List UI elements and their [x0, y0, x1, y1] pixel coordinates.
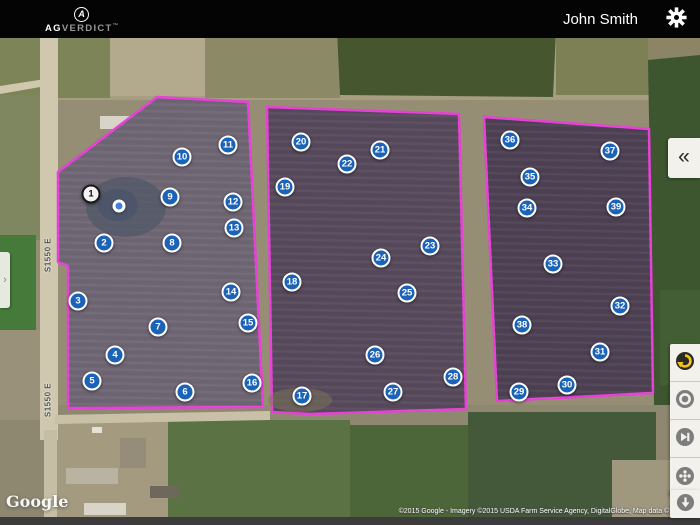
- user-name[interactable]: John Smith: [563, 11, 638, 28]
- sample-point-marker-8[interactable]: 8: [163, 234, 182, 253]
- skip-tool-button[interactable]: [670, 420, 700, 458]
- settings-button[interactable]: [665, 8, 687, 30]
- agverdict-logo[interactable]: A AGVERDICT™: [45, 7, 118, 34]
- satellite-map[interactable]: [0, 0, 700, 525]
- sample-point-marker-13[interactable]: 13: [225, 219, 244, 238]
- user-area: John Smith: [563, 8, 687, 30]
- sample-point-marker-10[interactable]: 10: [173, 148, 192, 167]
- sample-point-marker-24[interactable]: 24: [372, 249, 391, 268]
- sample-point-marker-12[interactable]: 12: [224, 193, 243, 212]
- gear-icon: [666, 7, 687, 31]
- sample-point-marker-33[interactable]: 33: [544, 255, 563, 274]
- sample-point-marker-1[interactable]: 1: [82, 185, 101, 204]
- sample-point-marker-23[interactable]: 23: [421, 237, 440, 256]
- sample-point-marker-36[interactable]: 36: [501, 131, 520, 150]
- sample-point-marker-39[interactable]: 39: [607, 198, 626, 217]
- sample-point-marker-6[interactable]: 6: [176, 383, 195, 402]
- sample-point-marker-21[interactable]: 21: [371, 141, 390, 160]
- current-location-dot: [113, 200, 126, 213]
- sample-point-marker-16[interactable]: 16: [243, 374, 262, 393]
- sample-point-marker-31[interactable]: 31: [591, 343, 610, 362]
- bottom-bar: [0, 517, 700, 525]
- record-tool-button[interactable]: [670, 382, 700, 420]
- map-attribution: ©2015 Google - Imagery ©2015 USDA Farm S…: [399, 508, 677, 515]
- sample-point-marker-11[interactable]: 11: [219, 136, 238, 155]
- road-label: S1550 E: [44, 383, 53, 417]
- chevron-double-left-icon: «: [678, 145, 690, 168]
- sync-circle-icon: [675, 351, 695, 374]
- download-tool-button[interactable]: [670, 490, 700, 518]
- sample-point-marker-9[interactable]: 9: [161, 188, 180, 207]
- sample-point-marker-5[interactable]: 5: [83, 372, 102, 391]
- agverdict-app: S1550 E S1550 E 123456789101112131415161…: [0, 0, 700, 525]
- sample-point-marker-28[interactable]: 28: [444, 368, 463, 387]
- reel-dots-icon: [675, 466, 695, 489]
- sample-point-marker-25[interactable]: 25: [398, 284, 417, 303]
- sample-point-marker-17[interactable]: 17: [293, 387, 312, 406]
- sample-point-marker-26[interactable]: 26: [366, 346, 385, 365]
- agverdict-wordmark: AGVERDICT™: [45, 23, 118, 34]
- chevron-right-icon: ›: [3, 274, 7, 286]
- sample-point-marker-38[interactable]: 38: [513, 316, 532, 335]
- sample-point-marker-15[interactable]: 15: [239, 314, 258, 333]
- sample-point-marker-34[interactable]: 34: [518, 199, 537, 218]
- top-bar: A AGVERDICT™ John Smith: [0, 0, 700, 38]
- collapse-right-panel-button[interactable]: «: [668, 138, 700, 178]
- map-tool-stack: [670, 344, 700, 496]
- sample-point-marker-20[interactable]: 20: [292, 133, 311, 152]
- google-logo: Google: [6, 492, 68, 511]
- sample-point-marker-4[interactable]: 4: [106, 346, 125, 365]
- sample-point-marker-32[interactable]: 32: [611, 297, 630, 316]
- download-arrow-icon: [676, 493, 695, 515]
- sync-tool-button[interactable]: [670, 344, 700, 382]
- sample-point-marker-37[interactable]: 37: [601, 142, 620, 161]
- brand-verdict: VERDICT: [62, 23, 113, 34]
- sample-point-marker-22[interactable]: 22: [338, 155, 357, 174]
- sample-point-marker-3[interactable]: 3: [69, 292, 88, 311]
- brand-tm: ™: [113, 23, 119, 29]
- sample-point-marker-2[interactable]: 2: [95, 234, 114, 253]
- expand-left-panel-button[interactable]: ›: [0, 252, 10, 308]
- sample-point-marker-14[interactable]: 14: [222, 283, 241, 302]
- sample-point-marker-29[interactable]: 29: [510, 383, 529, 402]
- road-label: S1550 E: [44, 238, 53, 272]
- brand-ag: AG: [45, 23, 62, 34]
- agverdict-logo-icon: A: [74, 7, 89, 22]
- sample-point-marker-7[interactable]: 7: [149, 318, 168, 337]
- skip-forward-icon: [675, 427, 695, 450]
- sample-point-marker-27[interactable]: 27: [384, 383, 403, 402]
- record-donut-icon: [675, 389, 695, 412]
- sample-point-marker-18[interactable]: 18: [283, 273, 302, 292]
- sample-point-marker-19[interactable]: 19: [276, 178, 295, 197]
- sample-point-marker-30[interactable]: 30: [558, 376, 577, 395]
- sample-point-marker-35[interactable]: 35: [521, 168, 540, 187]
